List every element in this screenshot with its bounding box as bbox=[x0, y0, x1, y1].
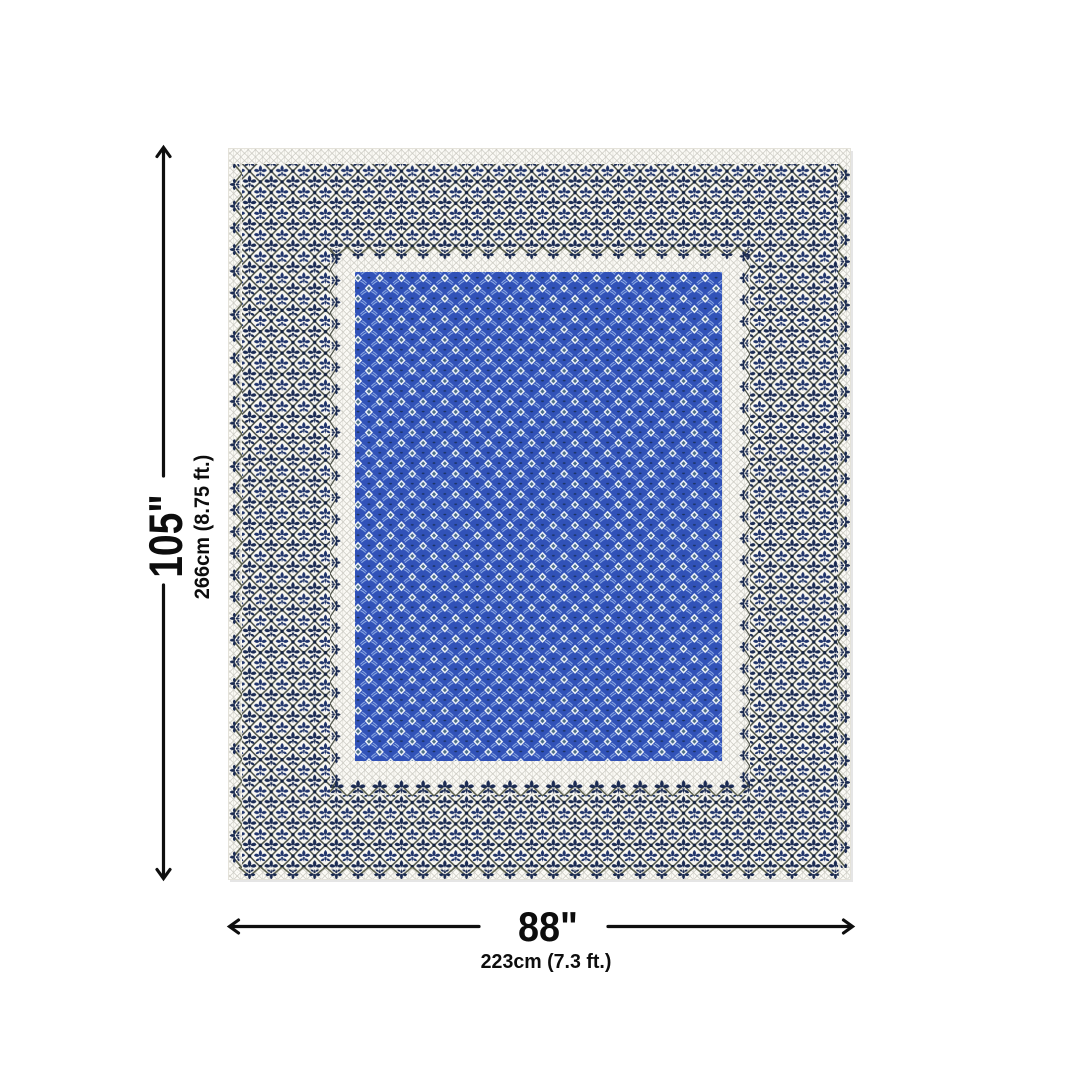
svg-text:266cm (8.75 ft.): 266cm (8.75 ft.) bbox=[191, 455, 215, 599]
svg-text:88": 88" bbox=[518, 904, 578, 950]
svg-text:105": 105" bbox=[140, 494, 192, 578]
svg-text:223cm (7.3 ft.): 223cm (7.3 ft.) bbox=[481, 951, 612, 973]
